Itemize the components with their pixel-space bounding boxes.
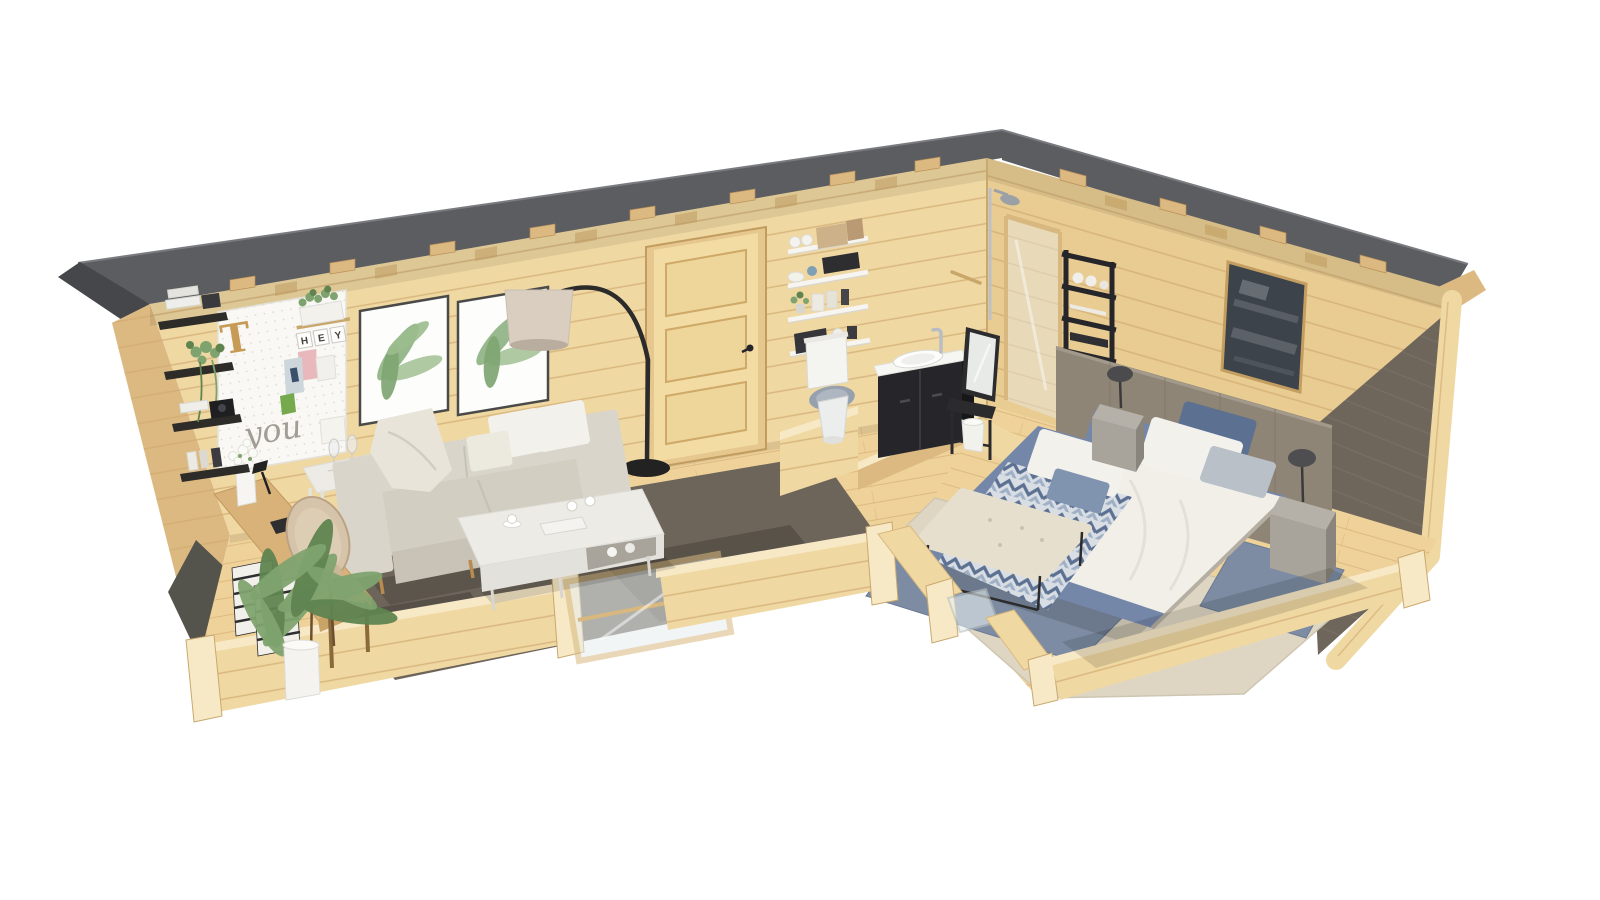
jar	[812, 294, 824, 311]
mirror	[961, 327, 1000, 402]
lamp-stem	[1120, 380, 1121, 408]
blue-jar	[807, 266, 817, 276]
sofa-pillow	[538, 404, 586, 448]
cup	[1100, 281, 1109, 290]
plant-pot	[796, 304, 805, 313]
lamp-shade	[505, 290, 573, 345]
shower-enclosure	[1006, 216, 1060, 420]
sofa-pillow-small	[470, 434, 509, 468]
storage-box	[846, 218, 864, 241]
toilet-base	[818, 396, 848, 442]
wing-corner-post	[1398, 550, 1430, 608]
toilet-foot	[823, 436, 843, 444]
lamp-stem	[1302, 464, 1303, 502]
rolled-magazine	[625, 543, 635, 553]
toilet-paper-roll	[802, 235, 813, 246]
bowl	[788, 272, 804, 282]
shelf-plant	[791, 297, 798, 304]
isometric-scene: T H E Y you	[0, 0, 1600, 900]
flower-greens	[248, 457, 252, 461]
lamp-shade-bottom	[510, 339, 568, 351]
waste-bin-lid	[963, 419, 983, 426]
rolled-magazine	[607, 547, 617, 557]
photo-white	[316, 355, 336, 381]
dark-box	[847, 326, 857, 339]
cup	[567, 501, 577, 511]
nightstand-left	[1092, 404, 1144, 472]
toilet-tank	[806, 335, 848, 389]
interior-door	[646, 227, 766, 469]
lamp-base	[622, 459, 670, 477]
cup	[508, 515, 517, 524]
shelf-plant	[797, 292, 804, 299]
cup	[585, 496, 595, 506]
bottle	[841, 289, 849, 305]
palm-pot	[284, 642, 320, 700]
lamp-dome	[1107, 366, 1133, 382]
toilet-paper-roll	[790, 237, 801, 248]
flower-greens	[238, 454, 242, 458]
jar	[187, 451, 198, 470]
camera-lens	[218, 404, 226, 412]
bedroom-wall-art	[1222, 262, 1306, 392]
shelf-plant	[803, 298, 809, 304]
palm-pot-rim	[283, 640, 319, 650]
art-print-1	[360, 296, 448, 425]
white-roll	[1086, 276, 1097, 287]
cabin-render: T H E Y you	[0, 0, 1600, 900]
white-roll	[1073, 273, 1084, 284]
lamp-dome	[1288, 449, 1316, 467]
jar	[827, 291, 837, 308]
